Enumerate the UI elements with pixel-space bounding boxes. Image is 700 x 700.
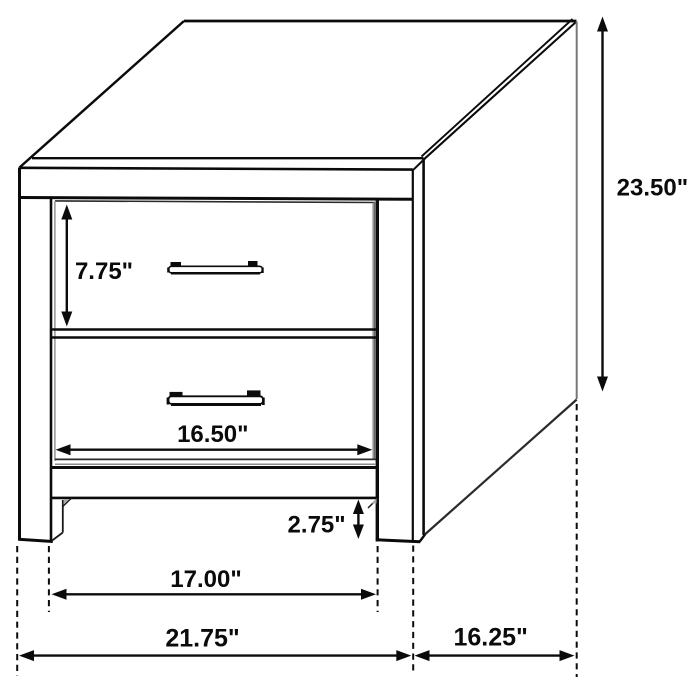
svg-text:2.75": 2.75" [288,511,346,538]
svg-text:17.00": 17.00" [170,566,241,593]
svg-text:16.50": 16.50" [177,421,248,448]
svg-text:23.50": 23.50" [617,175,688,202]
svg-text:16.25": 16.25" [453,623,527,651]
svg-text:7.75": 7.75" [75,258,133,285]
svg-text:21.75": 21.75" [165,625,239,653]
